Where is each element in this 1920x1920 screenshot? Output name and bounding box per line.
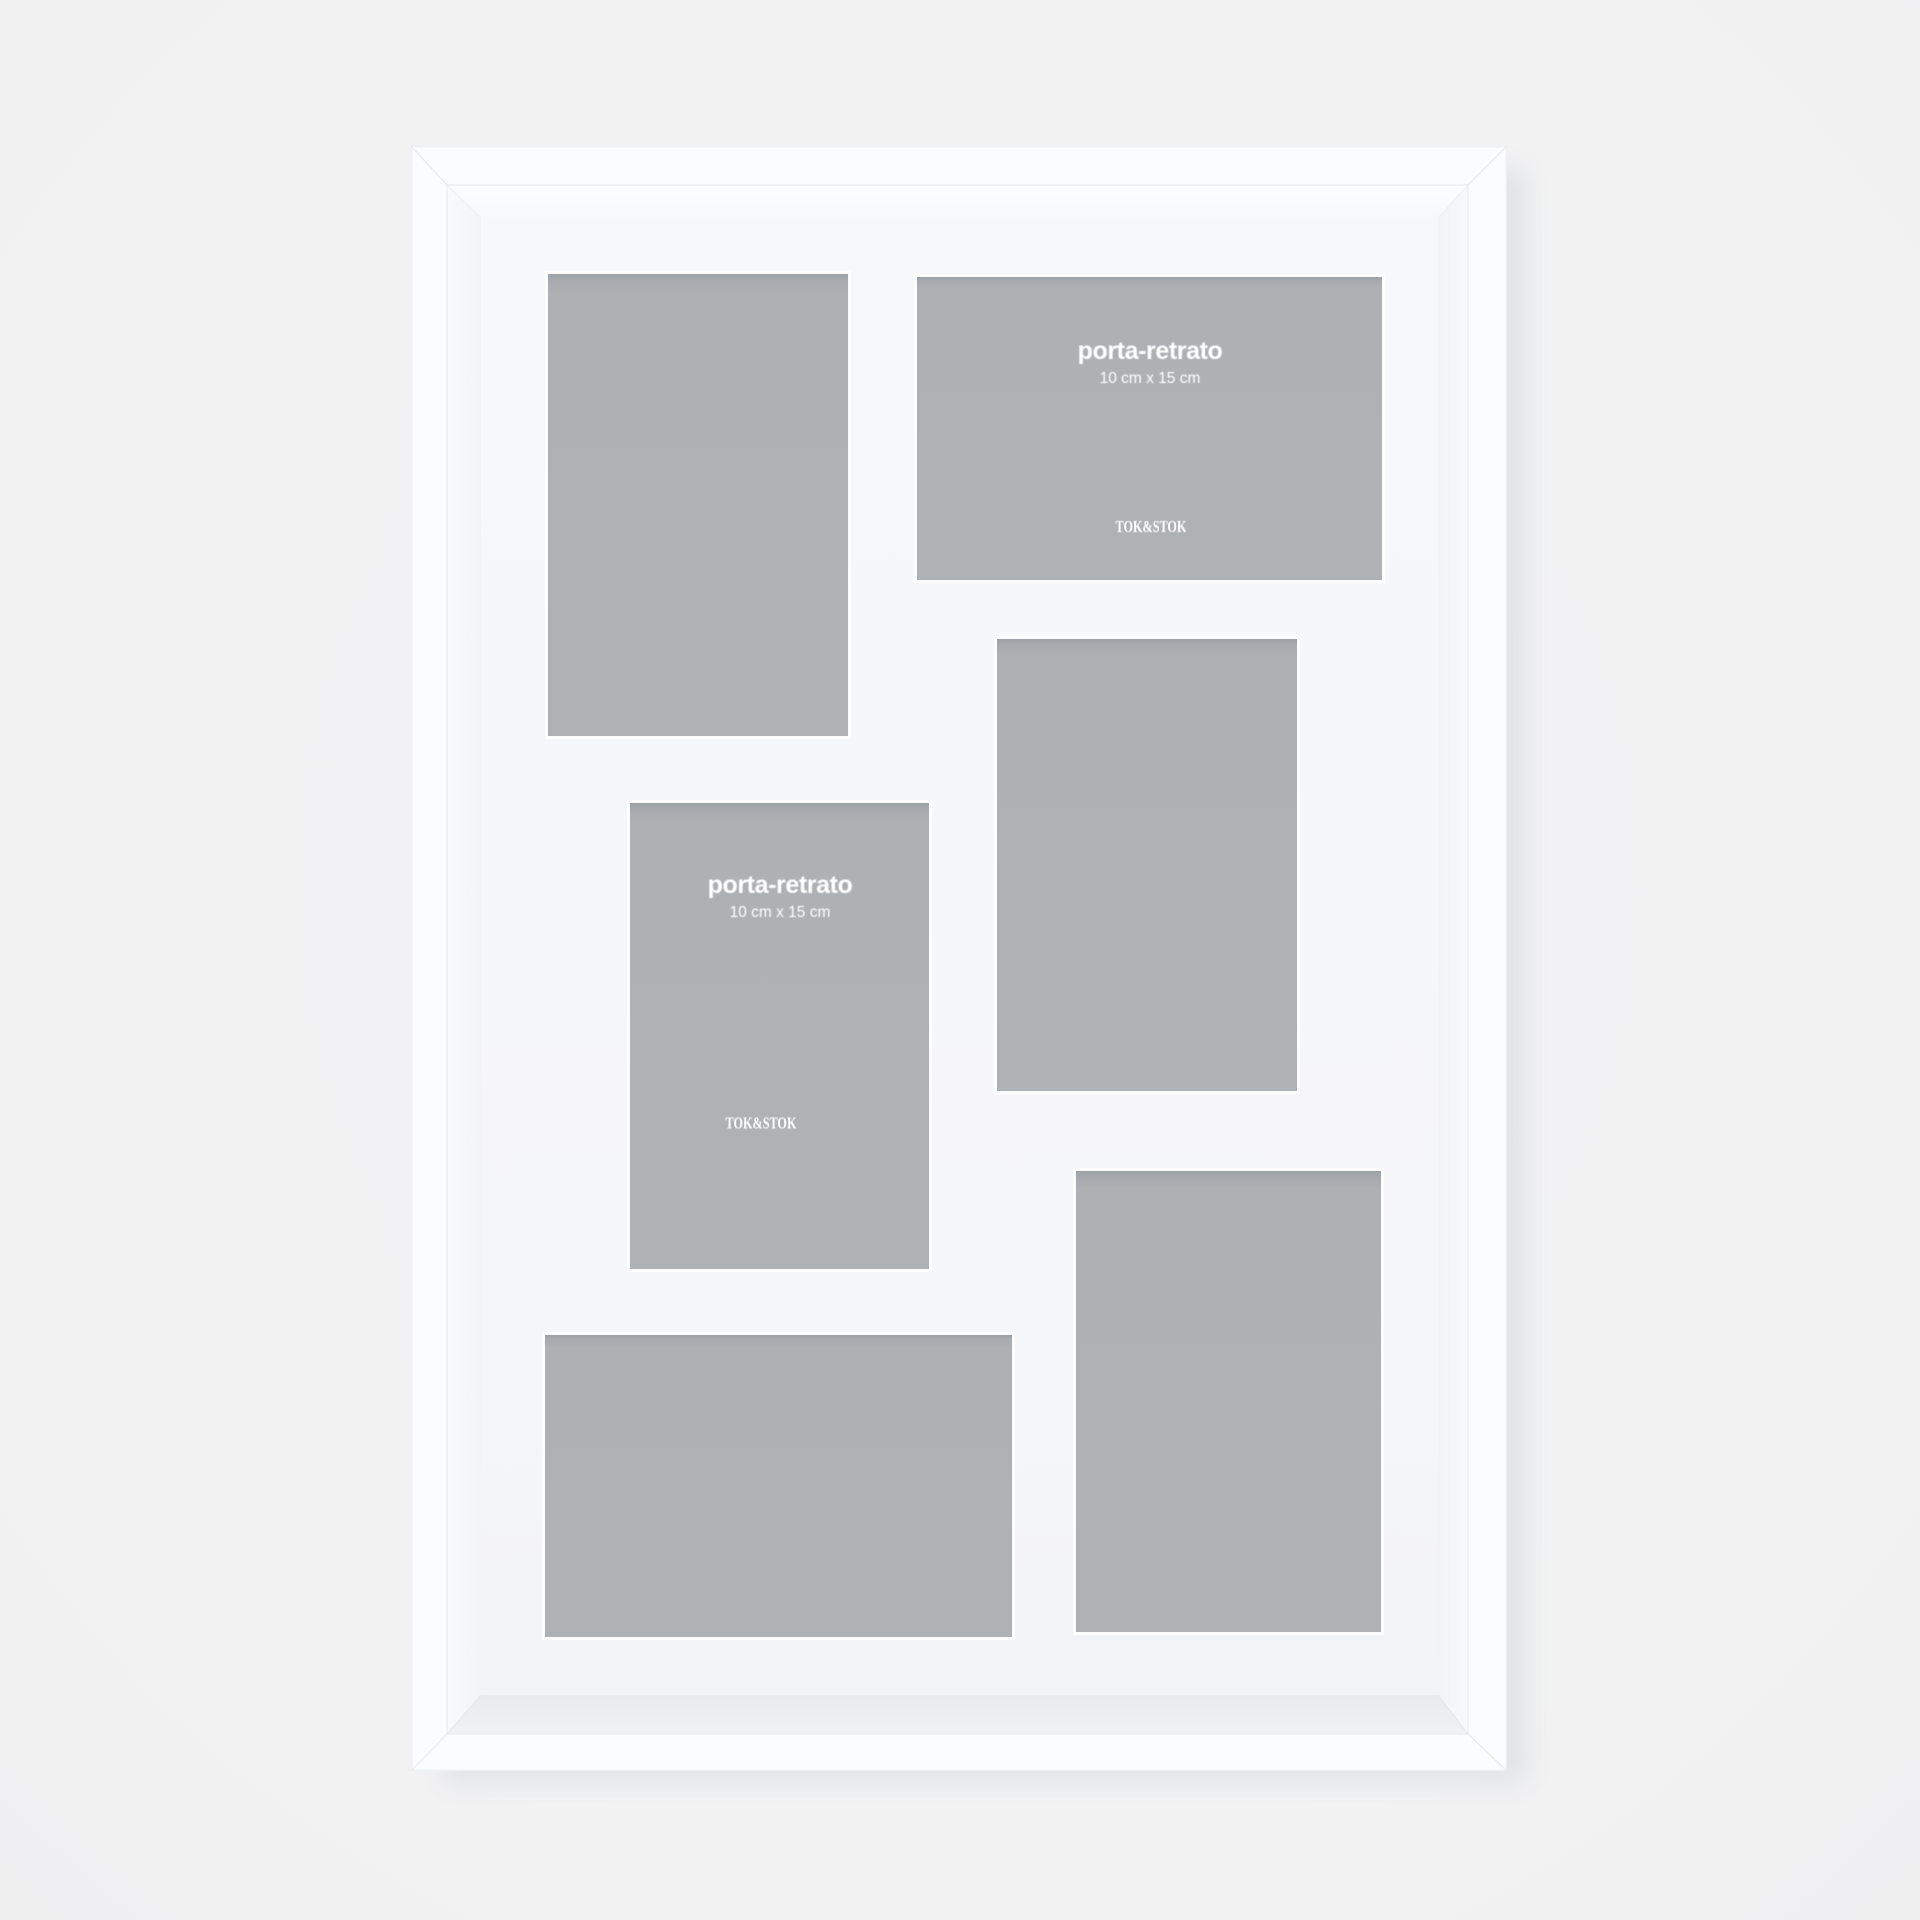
svg-text:TOK&STOK: TOK&STOK bbox=[726, 1115, 797, 1133]
svg-text:porta-retrato: porta-retrato bbox=[708, 871, 853, 899]
svg-text:porta-retrato: porta-retrato bbox=[1078, 337, 1223, 365]
svg-text:10 cm x 15 cm: 10 cm x 15 cm bbox=[730, 904, 831, 921]
svg-text:TOK&STOK: TOK&STOK bbox=[1116, 518, 1187, 536]
svg-text:10 cm x 15 cm: 10 cm x 15 cm bbox=[1100, 370, 1201, 387]
